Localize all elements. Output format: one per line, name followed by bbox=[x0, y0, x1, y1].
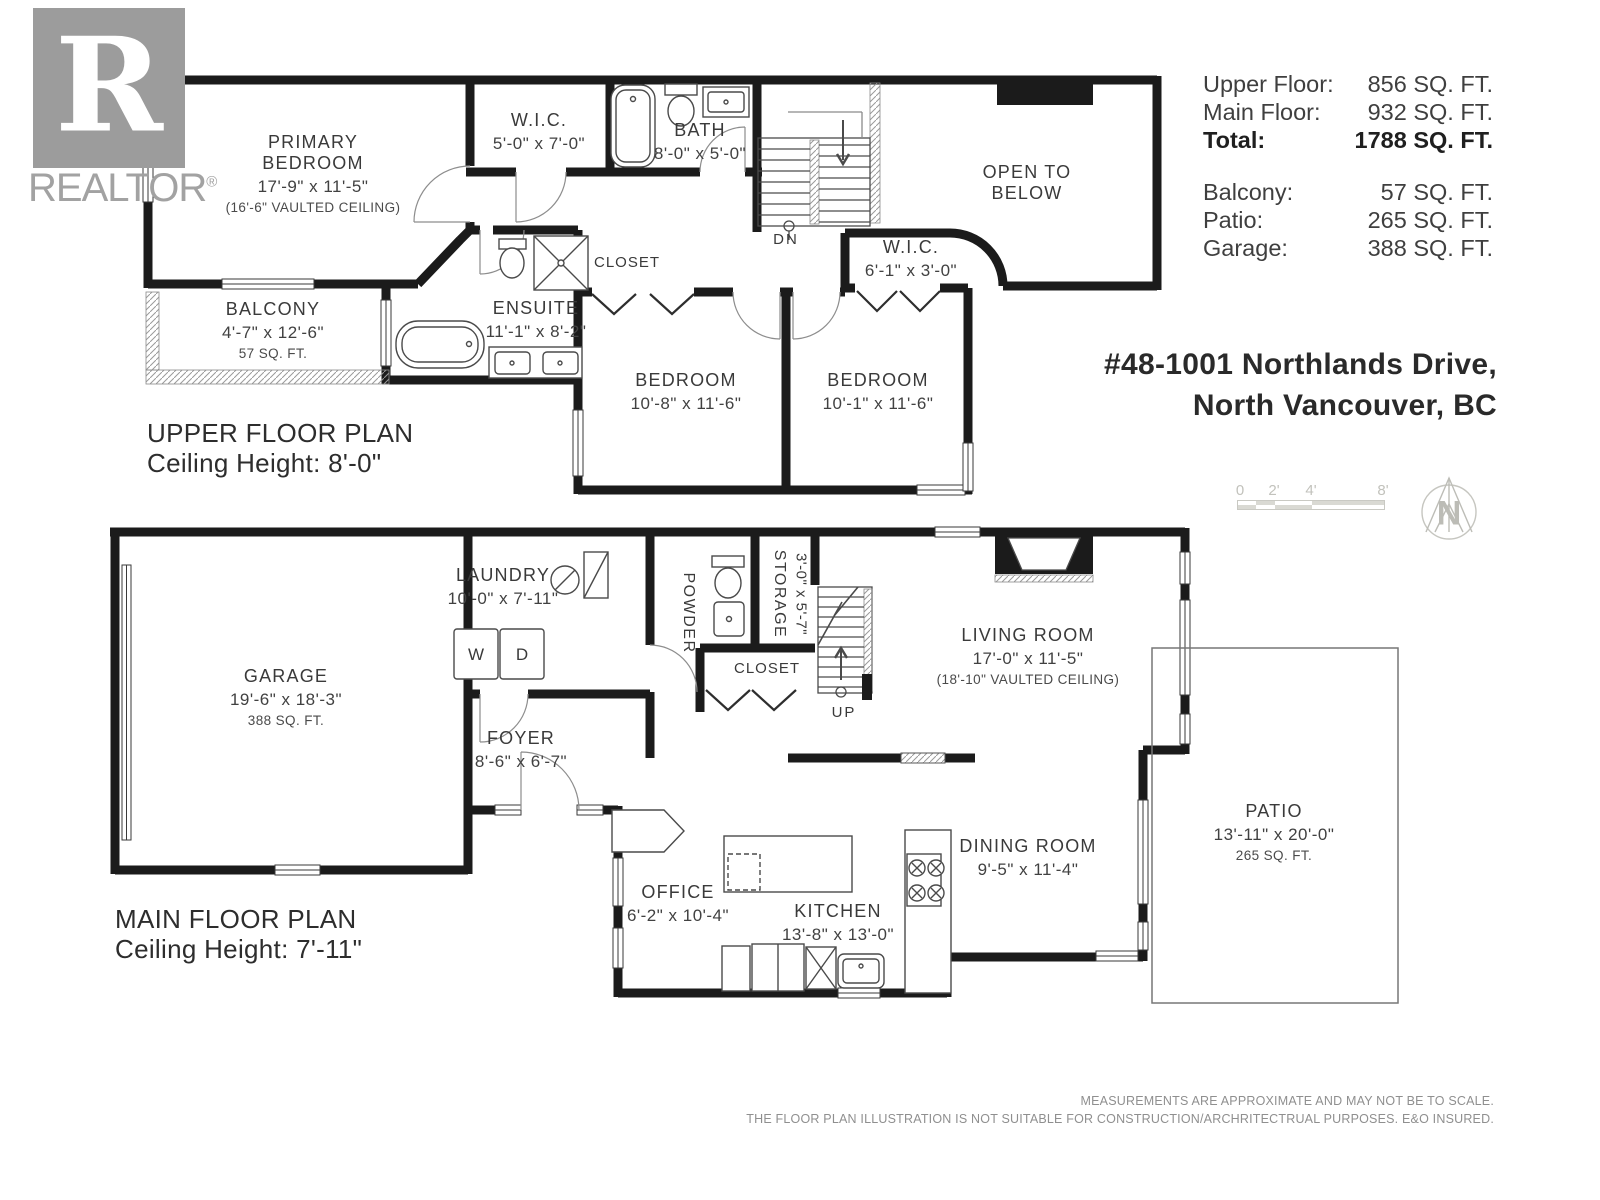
room-label-kitchen: KITCHEN 13'-8" x 13'-0" bbox=[782, 901, 894, 945]
room-label-bath: BATH 8'-0" x 5'-0" bbox=[654, 120, 746, 164]
main-stairs bbox=[818, 587, 872, 700]
summary-row: Main Floor:932 SQ. FT. bbox=[1203, 98, 1493, 126]
realtor-logo: R bbox=[33, 8, 185, 168]
disclaimer-text: MEASUREMENTS ARE APPROXIMATE AND MAY NOT… bbox=[746, 1092, 1494, 1128]
compass-letter: N bbox=[1437, 495, 1462, 534]
summary-row: Patio:265 SQ. FT. bbox=[1203, 206, 1493, 234]
summary-row: Garage:388 SQ. FT. bbox=[1203, 234, 1493, 262]
washer-label: W bbox=[468, 645, 484, 665]
room-label-wic-left: W.I.C. 5'-0" x 7'-0" bbox=[493, 110, 585, 154]
stairs-up-label: UP bbox=[832, 704, 857, 721]
living-dining-railing bbox=[901, 753, 945, 763]
room-label-office: OFFICE 6'-2" x 10'-4" bbox=[627, 882, 729, 926]
scale-tick: 4' bbox=[1305, 482, 1316, 499]
room-label-closet-main: CLOSET bbox=[734, 658, 800, 679]
area-summary: Upper Floor:856 SQ. FT. Main Floor:932 S… bbox=[1203, 70, 1493, 262]
room-label-primary-bedroom: PRIMARY BEDROOM 17'-9" x 11'-5" (16'-6" … bbox=[221, 132, 406, 215]
upper-closet-doors bbox=[592, 291, 940, 314]
room-label-laundry: LAUNDRY 10'-0" x 7'-11" bbox=[448, 565, 559, 609]
upper-floor-plan-title: UPPER FLOOR PLAN Ceiling Height: 8'-0" bbox=[147, 418, 413, 478]
room-label-wic-right: W.I.C. 6'-1" x 3'-0" bbox=[865, 237, 957, 281]
scale-bar-rule bbox=[1237, 500, 1385, 510]
scale-bar: 0 2' 4' 8' bbox=[1237, 482, 1385, 510]
floorplan-sheet: { "logo": { "word": "REALTOR", "reg": "®… bbox=[0, 0, 1600, 1200]
realtor-r-glyph: R bbox=[55, 8, 163, 161]
room-label-bedroom-right: BEDROOM 10'-1" x 11'-6" bbox=[823, 370, 934, 414]
summary-row: Balcony:57 SQ. FT. bbox=[1203, 178, 1493, 206]
fireplace bbox=[995, 532, 1093, 582]
room-label-open-to-below: OPEN TO BELOW bbox=[967, 162, 1087, 204]
stairs-dn-label: DN bbox=[773, 231, 799, 248]
registered-mark: ® bbox=[206, 174, 217, 191]
room-label-storage: STORAGE bbox=[770, 550, 788, 638]
main-closet-doors bbox=[706, 690, 796, 710]
room-label-foyer: FOYER 8'-6" x 6'-7" bbox=[475, 728, 567, 772]
scale-tick: 8' bbox=[1377, 482, 1388, 499]
room-label-living-room: LIVING ROOM 17'-0" x 11'-5" (18'-10" VAU… bbox=[937, 625, 1120, 687]
scale-tick: 0 bbox=[1236, 482, 1244, 499]
room-label-dining-room: DINING ROOM 9'-5" x 11'-4" bbox=[959, 836, 1096, 880]
room-label-garage: GARAGE 19'-6" x 18'-3" 388 SQ. FT. bbox=[230, 666, 342, 728]
main-floor-plan-title: MAIN FLOOR PLAN Ceiling Height: 7'-11" bbox=[115, 904, 362, 964]
property-address: #48-1001 Northlands Drive, North Vancouv… bbox=[1104, 344, 1497, 426]
room-label-powder: POWDER bbox=[679, 573, 697, 654]
summary-row-total: Total:1788 SQ. FT. bbox=[1203, 126, 1493, 154]
room-label-patio: PATIO 13'-11" x 20'-0" 265 SQ. FT. bbox=[1214, 801, 1335, 863]
scale-tick: 2' bbox=[1268, 482, 1279, 499]
open-below-header-wall bbox=[997, 80, 1093, 105]
storage-dim: 3'-0" x 5'-7" bbox=[793, 553, 810, 635]
dryer-label: D bbox=[516, 645, 528, 665]
realtor-wordmark: REALTOR® bbox=[28, 166, 217, 211]
summary-row: Upper Floor:856 SQ. FT. bbox=[1203, 70, 1493, 98]
room-label-bedroom-left: BEDROOM 10'-8" x 11'-6" bbox=[631, 370, 742, 414]
room-label-balcony: BALCONY 4'-7" x 12'-6" 57 SQ. FT. bbox=[222, 299, 324, 361]
room-label-ensuite: ENSUITE 11'-1" x 8'-2" bbox=[486, 298, 587, 342]
room-label-closet-upper: CLOSET bbox=[594, 252, 660, 273]
